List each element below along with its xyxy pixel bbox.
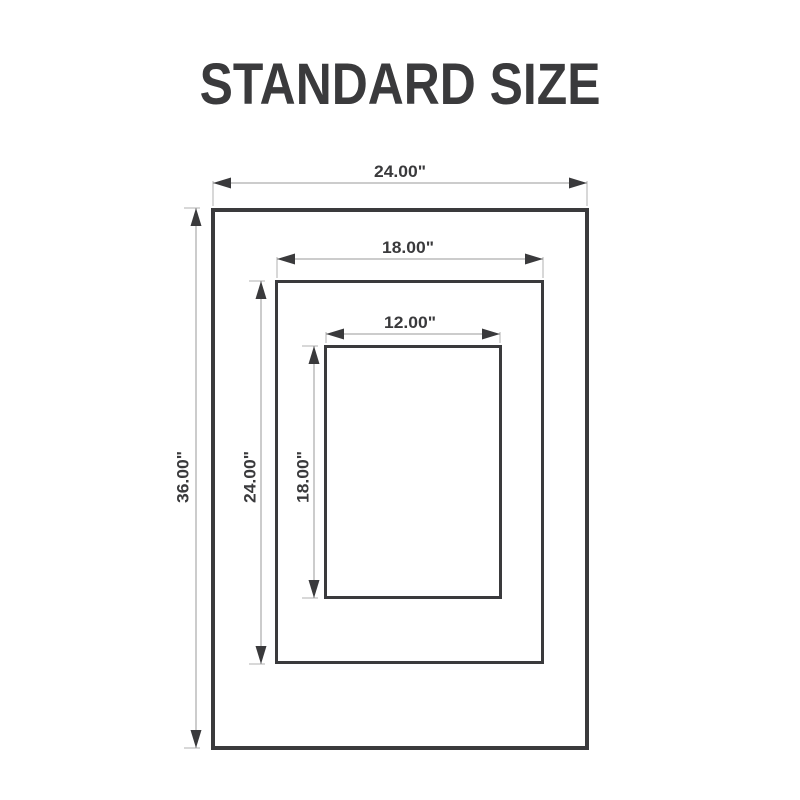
standard-size-illustration: STANDARD SIZE 24.00" 18.00" xyxy=(0,0,800,800)
inner-height-dimension: 18.00" xyxy=(294,346,320,598)
dimension-diagram: 24.00" 18.00" 12.00" 36.00" xyxy=(0,0,800,800)
inner-height-label: 18.00" xyxy=(294,451,313,503)
arrow-down-icon xyxy=(191,730,202,748)
arrow-right-icon xyxy=(525,254,543,265)
middle-frame-rect xyxy=(277,282,543,663)
arrow-left-icon xyxy=(277,254,295,265)
inner-width-dimension: 12.00" xyxy=(326,313,500,343)
arrow-right-icon xyxy=(569,178,587,189)
middle-width-label: 18.00" xyxy=(382,238,434,257)
arrow-right-icon xyxy=(482,329,500,340)
arrow-left-icon xyxy=(326,329,344,340)
middle-width-dimension: 18.00" xyxy=(277,238,543,278)
arrow-left-icon xyxy=(213,178,231,189)
inner-frame-rect xyxy=(326,347,501,598)
arrow-down-icon xyxy=(309,580,320,598)
outer-height-label: 36.00" xyxy=(174,451,193,503)
inner-width-label: 12.00" xyxy=(384,313,436,332)
arrow-up-icon xyxy=(309,346,320,364)
outer-width-dimension: 24.00" xyxy=(213,162,587,206)
outer-frame-rect xyxy=(213,210,587,748)
arrow-up-icon xyxy=(256,281,267,299)
arrow-down-icon xyxy=(256,646,267,664)
outer-width-label: 24.00" xyxy=(374,162,426,181)
outer-height-dimension: 36.00" xyxy=(174,208,202,748)
middle-height-label: 24.00" xyxy=(241,451,260,503)
arrow-up-icon xyxy=(191,208,202,226)
middle-height-dimension: 24.00" xyxy=(241,281,267,664)
